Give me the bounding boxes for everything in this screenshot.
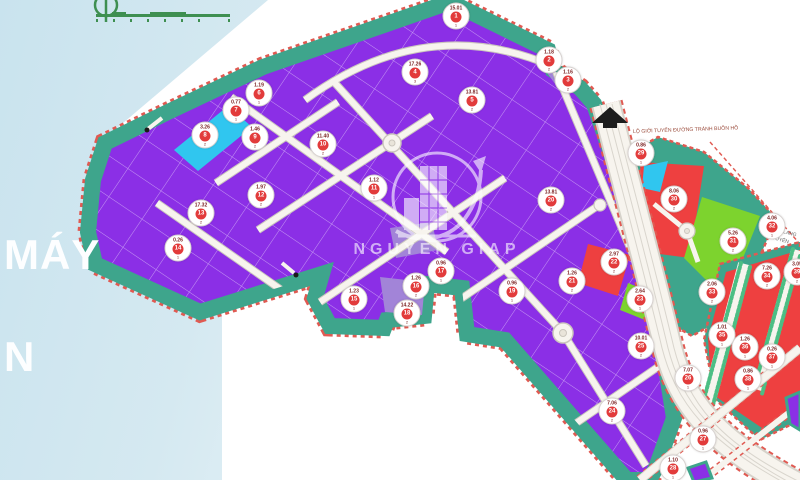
north-indicator-icon [95, 0, 117, 22]
plan-map-svg: LỘ GIỚI TUYẾN ĐƯỜNG TRÁNH BUÔN HỒ HÀNH L… [0, 0, 800, 480]
road-end-dot [145, 128, 150, 133]
plan-map-page: LỘ GIỚI TUYẾN ĐƯỜNG TRÁNH BUÔN HỒ HÀNH L… [0, 0, 800, 480]
headline-line2: N [4, 336, 35, 378]
scale-bar [96, 12, 230, 22]
lavender-parcel [380, 277, 425, 315]
headline-line1: MÁY [4, 234, 100, 276]
watermark-text: NGUYEN GIAP [353, 241, 520, 258]
road-end-dot [294, 273, 299, 278]
